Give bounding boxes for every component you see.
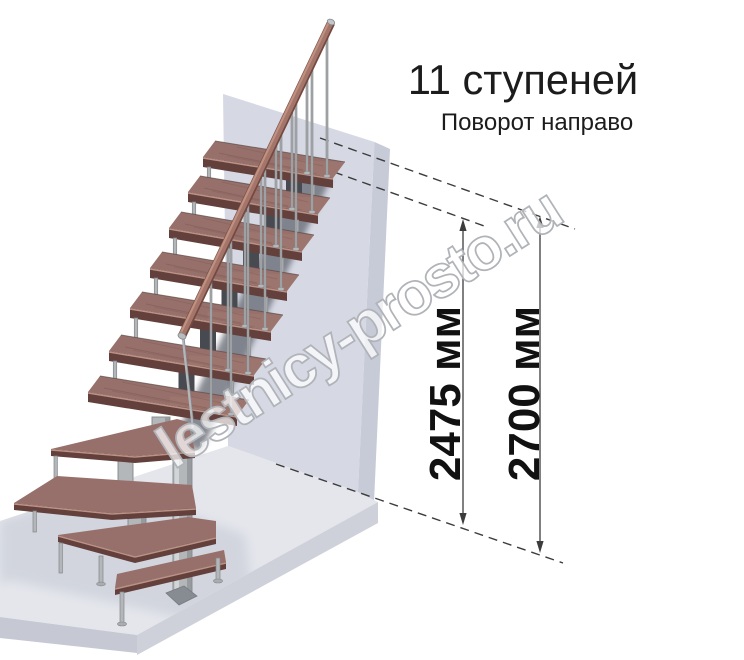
svg-text:11 ступеней: 11 ступеней — [408, 56, 638, 103]
svg-text:2700 мм: 2700 мм — [500, 306, 549, 481]
svg-text:2475 мм: 2475 мм — [421, 306, 470, 481]
svg-text:Поворот направо: Поворот направо — [441, 109, 633, 136]
